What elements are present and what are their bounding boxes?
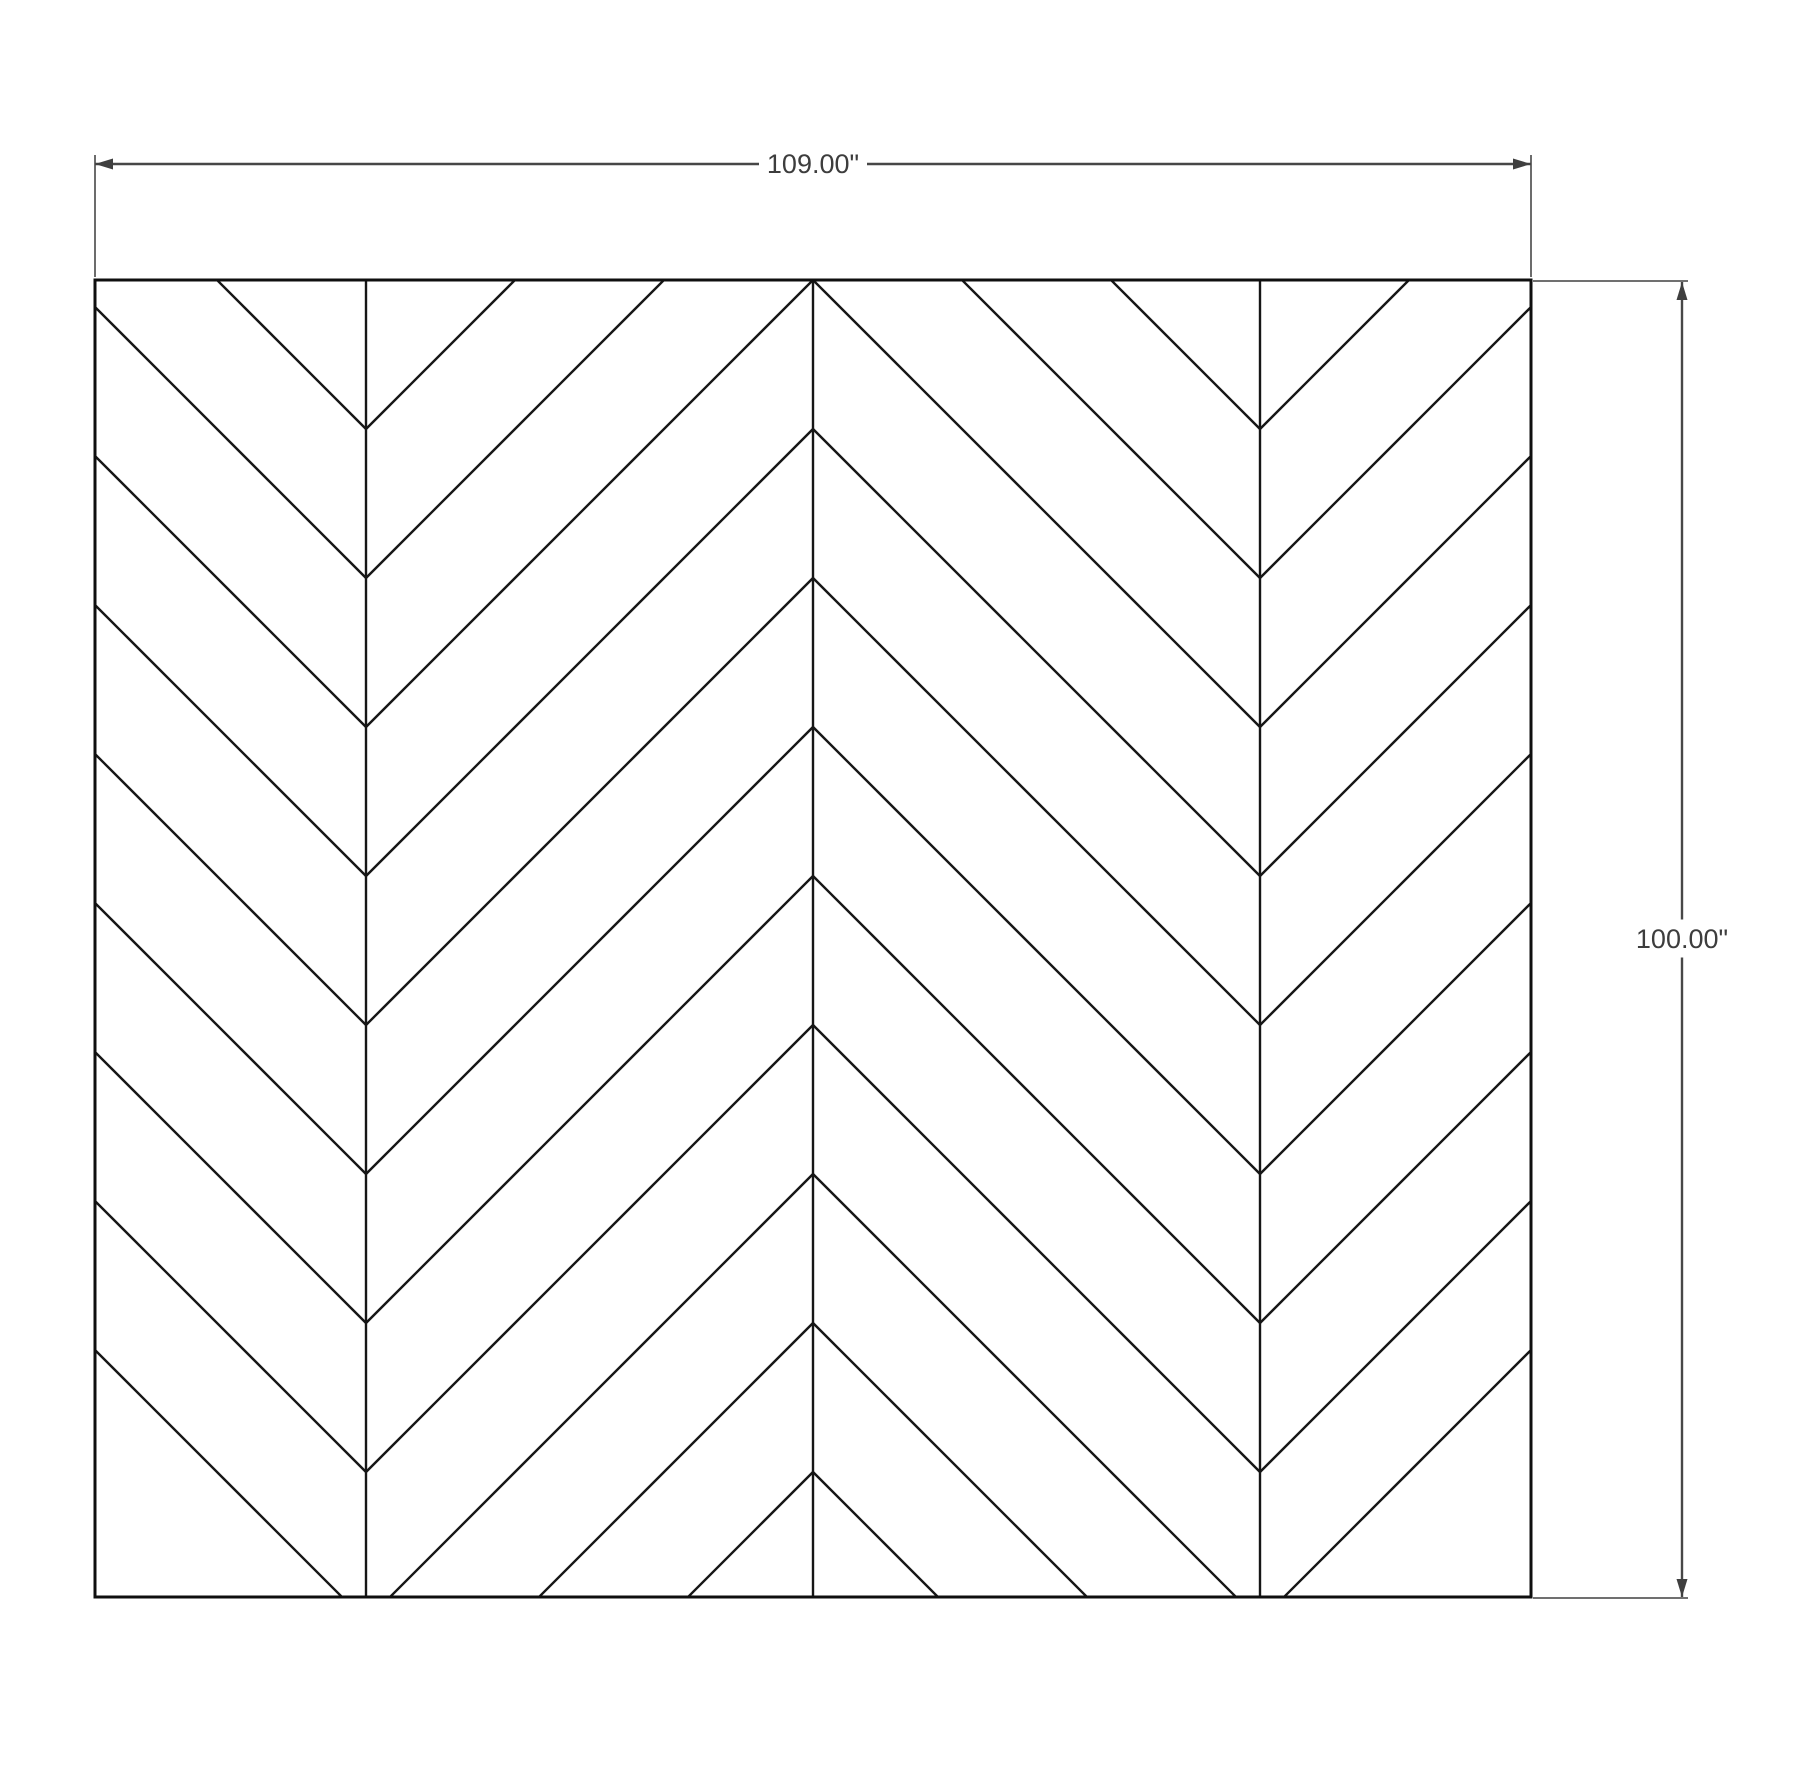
floor-plan-canvas: 109.00" 100.00" — [0, 0, 1800, 1773]
height-dimension-label: 100.00" — [1636, 924, 1728, 954]
drawing-stage: 109.00" 100.00" — [0, 0, 1800, 1773]
width-dimension-label: 109.00" — [767, 149, 859, 179]
